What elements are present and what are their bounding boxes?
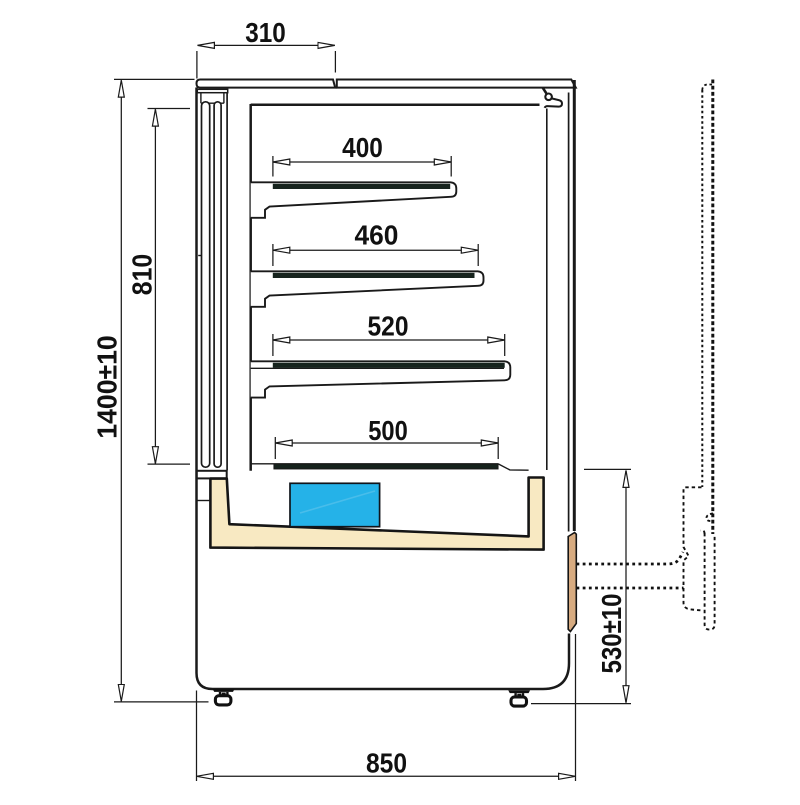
svg-text:850: 850 bbox=[366, 748, 407, 779]
svg-text:1400±10: 1400±10 bbox=[92, 335, 123, 439]
svg-text:520: 520 bbox=[368, 311, 409, 342]
svg-text:460: 460 bbox=[355, 219, 399, 250]
svg-text:500: 500 bbox=[368, 415, 408, 446]
svg-text:310: 310 bbox=[245, 17, 286, 48]
svg-text:530±10: 530±10 bbox=[596, 594, 627, 674]
svg-text:400: 400 bbox=[342, 132, 383, 163]
svg-text:810: 810 bbox=[127, 254, 158, 296]
